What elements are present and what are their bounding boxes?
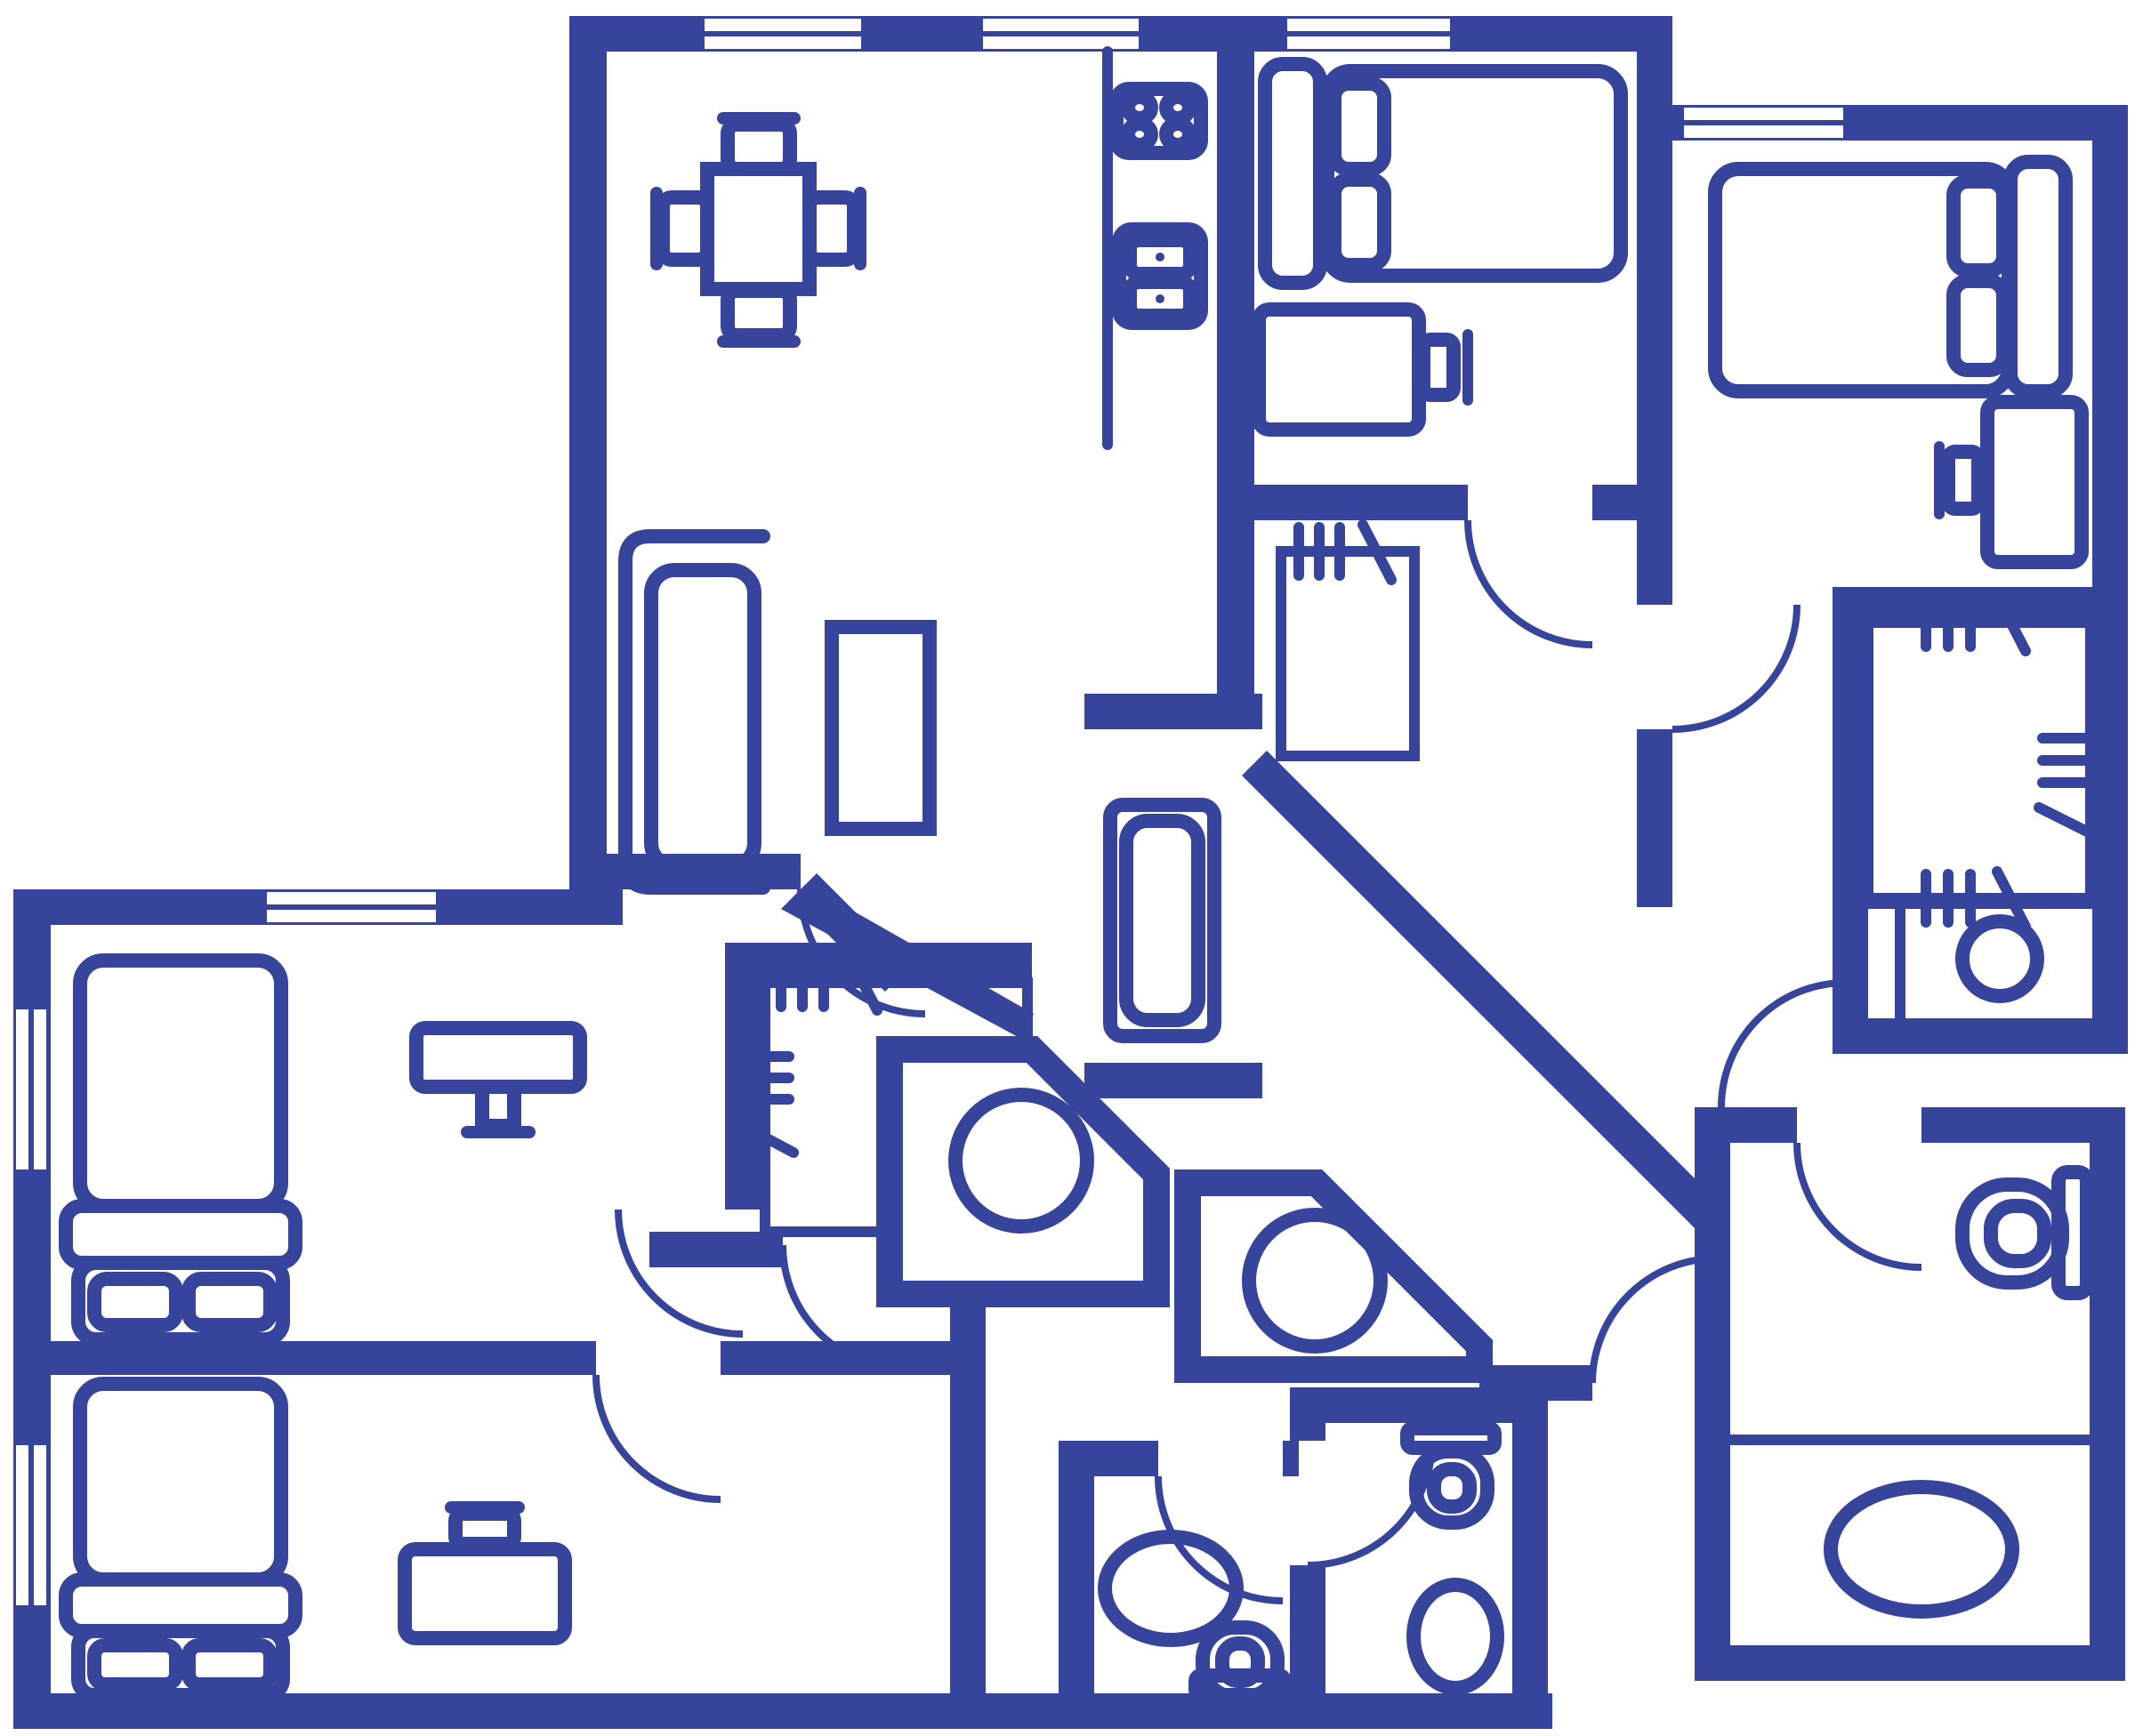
wall-wc-top-b bbox=[1283, 1441, 1299, 1476]
wall-sinkroom-left bbox=[1895, 898, 1905, 1018]
wall-wc-left bbox=[1059, 1441, 1094, 1729]
shower-toilet bbox=[1407, 1428, 1494, 1523]
wall-closet2-bottom bbox=[1833, 1018, 2128, 1054]
desk-2 bbox=[1934, 402, 2082, 562]
oval-bathtub-right bbox=[1831, 1487, 2012, 1611]
desk-1 bbox=[1259, 309, 1473, 430]
wall-bathright-left bbox=[1695, 1107, 1730, 1681]
bedroom-left-lower bbox=[66, 1384, 565, 1695]
dining-chair-top bbox=[717, 112, 801, 169]
wall-bathright-bottom bbox=[1695, 1645, 2125, 1681]
wall-right-exterior bbox=[2092, 105, 2128, 1054]
bathroom-right bbox=[1831, 1172, 2087, 1611]
wall-bed1-bed2-lower bbox=[1637, 729, 1672, 907]
utility-pod-b bbox=[1188, 1183, 1479, 1370]
stove-icon bbox=[1116, 89, 1201, 153]
floor-plan-page bbox=[0, 0, 2151, 1736]
wall-entrance-a bbox=[1479, 1365, 1592, 1401]
floor-plan-svg bbox=[0, 0, 2151, 1736]
bathtub-room-center bbox=[1110, 805, 1214, 1036]
kitchen bbox=[1108, 52, 1201, 445]
wall-wc-top-a bbox=[1059, 1441, 1158, 1476]
wall-kitchen-bottom bbox=[1084, 694, 1262, 729]
coffee-table bbox=[832, 627, 930, 829]
bedroom-left-upper bbox=[66, 960, 580, 1339]
desk-4 bbox=[405, 1501, 565, 1638]
wall-left-living bbox=[569, 16, 607, 925]
wall-bed1-bottom-b bbox=[1592, 485, 1637, 520]
dining-chair-bottom bbox=[717, 291, 801, 348]
bedroom-top-middle bbox=[1259, 64, 1621, 756]
shower-tub bbox=[1414, 1585, 1497, 1688]
door-bedroom1 bbox=[1468, 520, 1592, 645]
wall-bed1-bed2-upper bbox=[1637, 52, 1672, 605]
walls bbox=[13, 16, 2128, 1729]
dining-chair-right bbox=[810, 187, 866, 270]
bed-4 bbox=[66, 1384, 295, 1695]
wall-shower-left-a bbox=[1290, 1387, 1325, 1441]
bed-5 bbox=[66, 960, 295, 1339]
wall-shower-left-b bbox=[1290, 1565, 1325, 1693]
bathtub-inner bbox=[1126, 821, 1198, 1020]
closet-bedroom2 bbox=[1868, 596, 2092, 927]
wc-basin bbox=[1105, 1537, 1237, 1640]
bedroom-top-right bbox=[1715, 162, 2092, 996]
hall-closet bbox=[1281, 525, 1414, 756]
toilet-right bbox=[1962, 1172, 2087, 1293]
door-bedroom2-hall bbox=[1721, 983, 1846, 1107]
door-bedroom4 bbox=[596, 1375, 721, 1499]
dining-chair-left bbox=[650, 187, 707, 270]
door-bedroom2 bbox=[1672, 605, 1797, 729]
wall-shower-right bbox=[1512, 1387, 1548, 1693]
wall-bathright-right bbox=[2090, 1107, 2125, 1681]
door-bathroom-right bbox=[1797, 1143, 1921, 1267]
dining-table bbox=[707, 169, 810, 289]
wall-bathright-top-b bbox=[1921, 1107, 2092, 1143]
wall-kitchen-bedroom1 bbox=[1217, 16, 1254, 729]
door-bedroom5 bbox=[618, 1210, 743, 1334]
wash-basin-bedroom2 bbox=[1962, 921, 2037, 996]
desk-monitor-bed5 bbox=[416, 1028, 580, 1138]
kitchen-sink-icon bbox=[1119, 229, 1201, 323]
sofa bbox=[625, 536, 763, 888]
living-dining-room bbox=[625, 112, 930, 888]
wall-bed1-bottom-a bbox=[1254, 485, 1468, 520]
wall-bathright-divider bbox=[1730, 1435, 2090, 1445]
wall-tubroom-bottom bbox=[1084, 1063, 1262, 1098]
bed-1 bbox=[1265, 64, 1621, 283]
wall-lowerleft-right bbox=[950, 1272, 986, 1729]
bed-2 bbox=[1715, 162, 2066, 391]
wall-bathright-top-a bbox=[1730, 1107, 1797, 1143]
wc-toilet bbox=[1196, 1627, 1285, 1697]
shower-room-bottom bbox=[1407, 1428, 1497, 1688]
